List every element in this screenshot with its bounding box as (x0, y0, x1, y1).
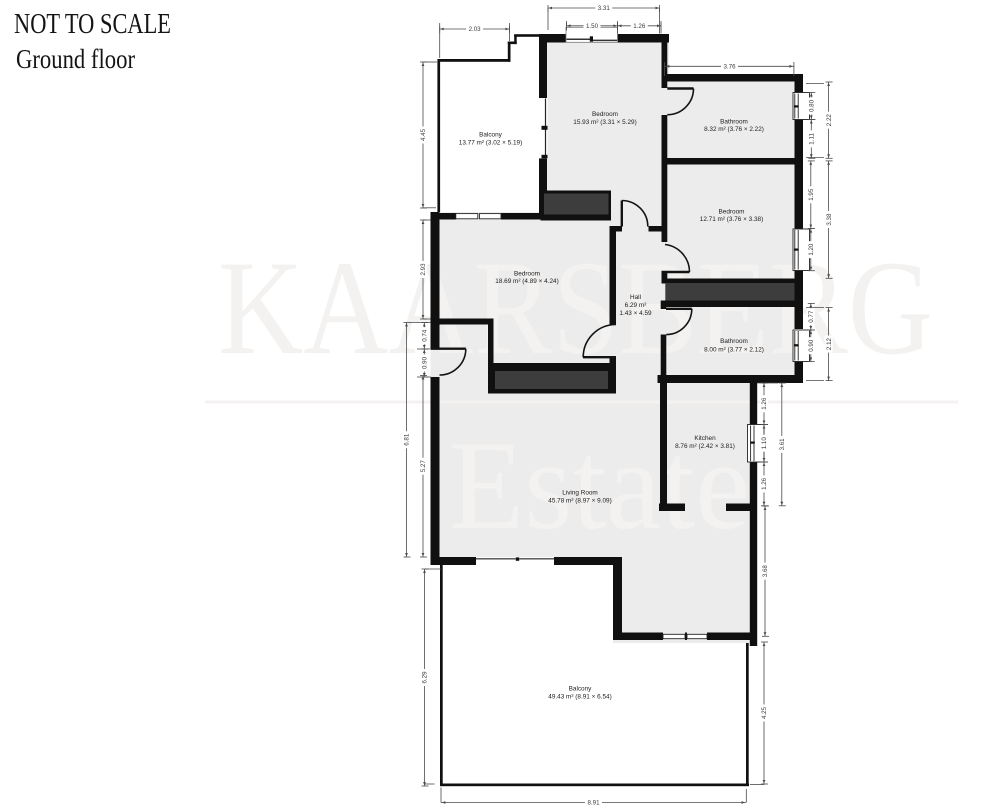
svg-text:3.76: 3.76 (723, 64, 736, 71)
svg-text:Bedroom: Bedroom (719, 209, 745, 216)
svg-text:6.81: 6.81 (404, 433, 411, 446)
svg-text:18.69 m² (4.89 × 4.24): 18.69 m² (4.89 × 4.24) (495, 278, 558, 285)
svg-text:4.25: 4.25 (761, 706, 768, 719)
svg-text:3.68: 3.68 (762, 565, 769, 578)
svg-text:Ground floor: Ground floor (16, 44, 135, 74)
svg-text:Living Room: Living Room (562, 490, 598, 497)
svg-text:49.43 m² (8.91 × 6.54): 49.43 m² (8.91 × 6.54) (548, 693, 611, 700)
svg-text:1.20: 1.20 (808, 243, 815, 256)
svg-text:0.90: 0.90 (808, 339, 815, 352)
svg-text:Balcony: Balcony (479, 132, 503, 139)
svg-text:1.26: 1.26 (633, 23, 646, 30)
svg-text:Hall: Hall (630, 294, 641, 301)
svg-text:4.45: 4.45 (420, 128, 427, 141)
svg-text:1.10: 1.10 (761, 437, 768, 450)
svg-text:12.71 m² (3.76 × 3.38): 12.71 m² (3.76 × 3.38) (700, 216, 763, 223)
svg-text:0.90: 0.90 (422, 356, 429, 369)
svg-text:3.38: 3.38 (826, 213, 833, 226)
svg-text:8.00 m² (3.77 × 2.12): 8.00 m² (3.77 × 2.12) (704, 346, 764, 353)
svg-text:Kitchen: Kitchen (694, 435, 716, 442)
svg-text:0.74: 0.74 (422, 329, 429, 342)
svg-text:45.78 m² (8.97 × 9.09): 45.78 m² (8.97 × 9.09) (548, 498, 611, 505)
svg-text:8.76 m² (2.42 × 3.81): 8.76 m² (2.42 × 3.81) (675, 443, 735, 450)
svg-text:0.77: 0.77 (808, 310, 815, 323)
svg-text:8.91: 8.91 (587, 800, 600, 807)
svg-text:15.93 m² (3.31 × 5.29): 15.93 m² (3.31 × 5.29) (573, 119, 636, 126)
svg-text:Balcony: Balcony (569, 686, 593, 693)
svg-text:2.03: 2.03 (469, 26, 482, 33)
svg-text:1.95: 1.95 (808, 188, 815, 201)
svg-text:2.12: 2.12 (826, 337, 833, 350)
svg-text:13.77 m² (3.02 × 5.19): 13.77 m² (3.02 × 5.19) (459, 139, 522, 146)
svg-text:2.22: 2.22 (826, 114, 833, 127)
svg-text:Bathroom: Bathroom (720, 119, 748, 126)
svg-text:0.80: 0.80 (809, 99, 816, 112)
svg-text:1.50: 1.50 (586, 23, 599, 30)
svg-text:KAARSBERG: KAARSBERG (218, 234, 933, 383)
svg-text:Bedroom: Bedroom (592, 111, 618, 118)
svg-text:6.29 m²: 6.29 m² (625, 302, 647, 309)
svg-text:1.26: 1.26 (761, 397, 768, 410)
svg-text:1.26: 1.26 (761, 477, 768, 490)
svg-text:Bathroom: Bathroom (720, 338, 748, 345)
svg-text:8.32 m² (3.76 × 2.22): 8.32 m² (3.76 × 2.22) (704, 126, 764, 133)
svg-text:1.11: 1.11 (809, 133, 816, 145)
svg-text:Bedroom: Bedroom (514, 271, 540, 278)
svg-text:6.29: 6.29 (422, 671, 429, 684)
svg-text:2.93: 2.93 (420, 263, 427, 276)
svg-text:NOT TO SCALE: NOT TO SCALE (14, 8, 171, 40)
svg-text:3.31: 3.31 (598, 5, 611, 12)
svg-text:3.61: 3.61 (779, 438, 786, 451)
svg-text:5.27: 5.27 (420, 460, 427, 473)
svg-text:1.43 × 4.59: 1.43 × 4.59 (619, 310, 652, 317)
